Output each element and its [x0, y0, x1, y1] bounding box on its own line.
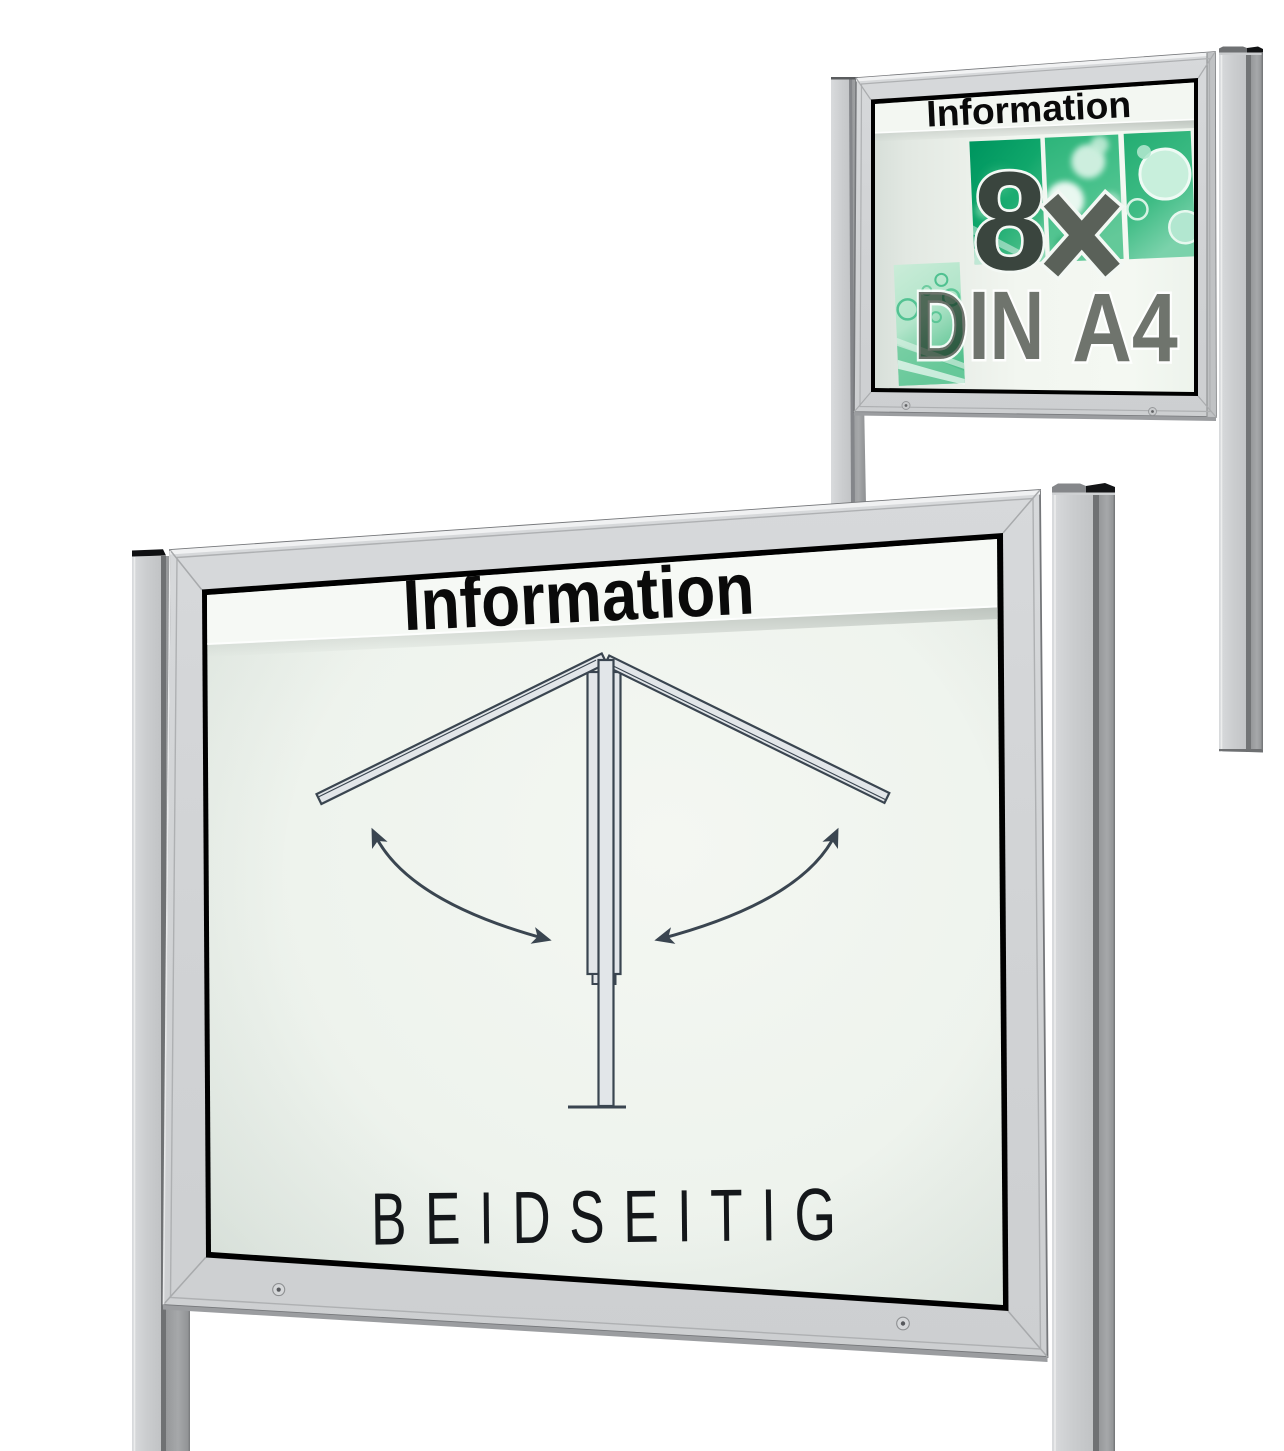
svg-text:A4: A4 [1072, 274, 1178, 383]
svg-text:DIN: DIN [914, 272, 1045, 380]
svg-text:BEIDSEITIG: BEIDSEITIG [371, 1173, 855, 1261]
